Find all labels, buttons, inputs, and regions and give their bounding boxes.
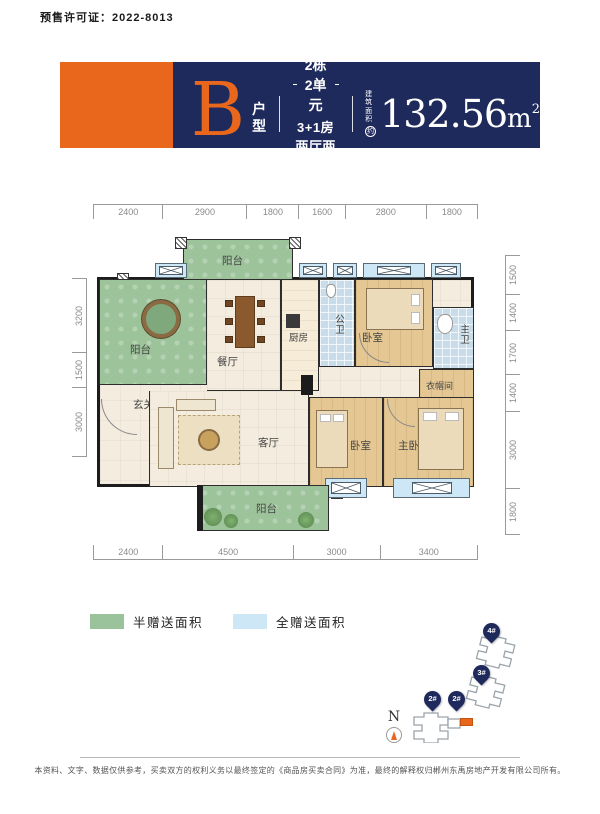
room-label: 厨房 bbox=[289, 330, 308, 344]
legend-label: 半赠送面积 bbox=[133, 612, 203, 631]
unit-info: 2栋2单元 3+1房两厅两卫 bbox=[293, 55, 339, 174]
legend-item-full-gift: 全赠送面积 bbox=[233, 612, 346, 631]
room-bath-master: 主卫 bbox=[433, 307, 474, 369]
site-plan: 4# 3# 2# 2# N bbox=[378, 613, 563, 758]
coffee-table-icon bbox=[198, 429, 220, 451]
dim-value: 1500 bbox=[508, 265, 518, 285]
dim-segment: 2900 bbox=[162, 204, 246, 219]
bay-window bbox=[325, 478, 367, 498]
presale-permit-text: 预售许可证：2022-8013 bbox=[40, 9, 174, 25]
banner-divider bbox=[352, 96, 353, 132]
room-dining: 餐厅 bbox=[207, 279, 281, 391]
building-2-footprint bbox=[412, 709, 464, 748]
chair-icon bbox=[257, 300, 265, 307]
dim-value: 2900 bbox=[195, 207, 215, 217]
window-icon bbox=[412, 482, 452, 494]
area-value-group: 132.56m2 bbox=[380, 94, 540, 134]
bay-window bbox=[155, 263, 187, 278]
dim-value: 3000 bbox=[74, 412, 84, 432]
round-table-icon bbox=[142, 300, 180, 338]
room-kitchen: 厨房 bbox=[281, 279, 319, 391]
bay-window bbox=[333, 263, 357, 278]
room-label: 主卧 bbox=[398, 438, 419, 453]
dimension-row-top: 2400 2900 1800 1600 2800 1800 bbox=[93, 204, 478, 219]
dim-value: 4500 bbox=[218, 547, 238, 557]
sofa-icon bbox=[158, 407, 174, 469]
chair-icon bbox=[225, 318, 233, 325]
building-2-pin: 2# bbox=[444, 687, 468, 711]
window-icon bbox=[377, 266, 411, 275]
unit-type-label: 户型 bbox=[252, 101, 266, 136]
dim-value: 3000 bbox=[508, 440, 518, 460]
legend-swatch-green bbox=[90, 614, 124, 629]
dim-segment: 2400 bbox=[93, 545, 162, 560]
dim-segment: 3000 bbox=[505, 411, 520, 489]
chair-icon bbox=[257, 336, 265, 343]
pin-label: 3# bbox=[473, 665, 490, 682]
pillar-hatch-icon bbox=[289, 237, 301, 249]
room-label: 衣帽间 bbox=[426, 379, 453, 392]
sofa-icon bbox=[176, 399, 216, 411]
flyer-page: 预售许可证：2022-8013 B 户型 2栋2单元 3+1房两厅两卫 建筑 面… bbox=[0, 0, 600, 814]
dim-value: 1700 bbox=[508, 343, 518, 363]
dim-segment: 3000 bbox=[293, 545, 380, 560]
unit-type-letter: B bbox=[191, 70, 245, 150]
dim-value: 2400 bbox=[118, 207, 138, 217]
room-label: 客厅 bbox=[258, 435, 279, 450]
dim-value: 1400 bbox=[508, 383, 518, 403]
bed-icon bbox=[418, 408, 464, 470]
dim-segment: 3000 bbox=[72, 387, 87, 457]
dim-value: 1500 bbox=[74, 360, 84, 380]
area-unit-sup: 2 bbox=[532, 102, 540, 117]
bay-window bbox=[431, 263, 461, 278]
wall-segment bbox=[197, 485, 203, 531]
banner-divider bbox=[279, 96, 280, 132]
dimension-row-bottom: 2400 4500 3000 3400 bbox=[93, 545, 478, 560]
dim-segment: 2800 bbox=[345, 204, 426, 219]
window-icon bbox=[303, 266, 323, 275]
dimension-col-right: 1500 1400 1700 1400 3000 1800 bbox=[505, 255, 520, 535]
area-unit: m bbox=[507, 104, 532, 134]
area-label-bottom: 面积 bbox=[365, 108, 376, 124]
dim-value: 2400 bbox=[118, 547, 138, 557]
disclaimer-text: 本资料、文字、数据仅供参考，买卖双方的权利义务以最终签定的《商品房买卖合同》为准… bbox=[30, 765, 570, 776]
bay-window bbox=[393, 478, 470, 498]
window-icon bbox=[435, 266, 457, 275]
dim-value: 3200 bbox=[74, 306, 84, 326]
room-label: 阳台 bbox=[256, 501, 277, 516]
dim-value: 1800 bbox=[508, 502, 518, 522]
bay-window bbox=[299, 263, 327, 278]
legend-swatch-blue bbox=[233, 614, 267, 629]
building-2-pin: 2# bbox=[420, 687, 444, 711]
north-label: N bbox=[386, 709, 402, 725]
room-bath-public: 公卫 bbox=[319, 279, 355, 367]
dim-segment: 4500 bbox=[162, 545, 292, 560]
dim-segment: 2400 bbox=[93, 204, 162, 219]
unit-b-marker bbox=[460, 718, 473, 726]
pillow-icon bbox=[445, 412, 459, 421]
dim-segment: 1400 bbox=[505, 374, 520, 410]
room-label: 餐厅 bbox=[217, 354, 238, 369]
room-living: 客厅 bbox=[149, 391, 309, 487]
dim-segment: 1500 bbox=[72, 352, 87, 387]
dim-segment: 1800 bbox=[426, 204, 478, 219]
area-label-top: 建筑 bbox=[365, 91, 376, 107]
bathtub-icon bbox=[437, 314, 453, 334]
dim-segment: 3400 bbox=[380, 545, 478, 560]
dim-segment: 1500 bbox=[505, 255, 520, 294]
chair-icon bbox=[257, 318, 265, 325]
dim-segment: 3200 bbox=[72, 278, 87, 352]
floor-plan: 阳台 阳台 餐厅 bbox=[93, 237, 478, 535]
approx-circle-icon: 约 bbox=[365, 126, 376, 137]
pillow-icon bbox=[333, 414, 344, 422]
window-icon bbox=[159, 266, 183, 275]
dim-segment: 1800 bbox=[505, 488, 520, 535]
bay-window bbox=[363, 263, 425, 278]
pillar-hatch-icon bbox=[175, 237, 187, 249]
room-label: 阳台 bbox=[130, 342, 151, 357]
pillow-icon bbox=[411, 312, 420, 324]
banner-navy-block: B 户型 2栋2单元 3+1房两厅两卫 建筑 面积 约 132.56m2 bbox=[173, 62, 540, 148]
room-label: 主卫 bbox=[456, 324, 470, 345]
compass-ring-icon bbox=[386, 727, 402, 743]
dim-value: 1800 bbox=[263, 207, 283, 217]
window-icon bbox=[337, 266, 353, 275]
area-label: 建筑 面积 约 bbox=[365, 91, 376, 136]
plant-icon bbox=[204, 508, 222, 526]
toilet-icon bbox=[326, 284, 336, 298]
unit-layout-text: 3+1房两厅两卫 bbox=[293, 117, 339, 174]
room-balcony-top: 阳台 bbox=[183, 239, 293, 281]
legend: 半赠送面积 全赠送面积 bbox=[90, 612, 346, 631]
room-label: 卧室 bbox=[350, 438, 371, 453]
building-4-pin: 4# bbox=[479, 619, 503, 643]
window-icon bbox=[331, 482, 361, 494]
bed-icon bbox=[366, 288, 424, 330]
room-bedroom-mid: 卧室 bbox=[309, 397, 383, 487]
dim-value: 3400 bbox=[419, 547, 439, 557]
area-value: 132.56 bbox=[380, 92, 507, 136]
legend-label: 全赠送面积 bbox=[276, 612, 346, 631]
dim-value: 3000 bbox=[327, 547, 347, 557]
footer-divider bbox=[80, 757, 520, 758]
dim-value: 1400 bbox=[508, 303, 518, 323]
dining-table-icon bbox=[235, 296, 255, 348]
pin-label: 4# bbox=[483, 623, 500, 640]
room-balcony-bottom: 阳台 bbox=[197, 485, 329, 531]
dim-value: 2800 bbox=[376, 207, 396, 217]
dim-segment: 1600 bbox=[298, 204, 344, 219]
bed-icon bbox=[316, 410, 348, 468]
dim-value: 1600 bbox=[312, 207, 332, 217]
stove-icon bbox=[286, 314, 300, 328]
plant-icon bbox=[298, 512, 314, 528]
banner-orange-block bbox=[60, 62, 173, 148]
plant-icon bbox=[224, 514, 238, 528]
dim-segment: 1800 bbox=[246, 204, 298, 219]
chair-icon bbox=[225, 300, 233, 307]
dim-segment: 1700 bbox=[505, 330, 520, 374]
room-label: 公卫 bbox=[331, 314, 345, 335]
compass-needle-icon bbox=[391, 731, 397, 740]
dim-value: 1800 bbox=[442, 207, 462, 217]
header-banner: B 户型 2栋2单元 3+1房两厅两卫 建筑 面积 约 132.56m2 bbox=[60, 62, 540, 148]
area-block: 建筑 面积 约 132.56m2 bbox=[365, 91, 540, 136]
pillow-icon bbox=[320, 414, 331, 422]
pin-label: 2# bbox=[448, 691, 465, 708]
pin-label: 2# bbox=[424, 691, 441, 708]
chair-icon bbox=[225, 336, 233, 343]
unit-building-text: 2栋2单元 bbox=[293, 55, 339, 115]
wall-segment bbox=[301, 375, 313, 395]
dim-segment: 1400 bbox=[505, 294, 520, 330]
pillow-icon bbox=[423, 412, 437, 421]
legend-item-half-gift: 半赠送面积 bbox=[90, 612, 203, 631]
room-label: 阳台 bbox=[222, 253, 243, 268]
compass: N bbox=[386, 709, 402, 743]
room-balcony-left: 阳台 bbox=[99, 279, 207, 385]
pillow-icon bbox=[411, 294, 420, 306]
dimension-col-left: 3200 1500 3000 bbox=[72, 278, 87, 457]
building-3-pin: 3# bbox=[469, 661, 493, 685]
